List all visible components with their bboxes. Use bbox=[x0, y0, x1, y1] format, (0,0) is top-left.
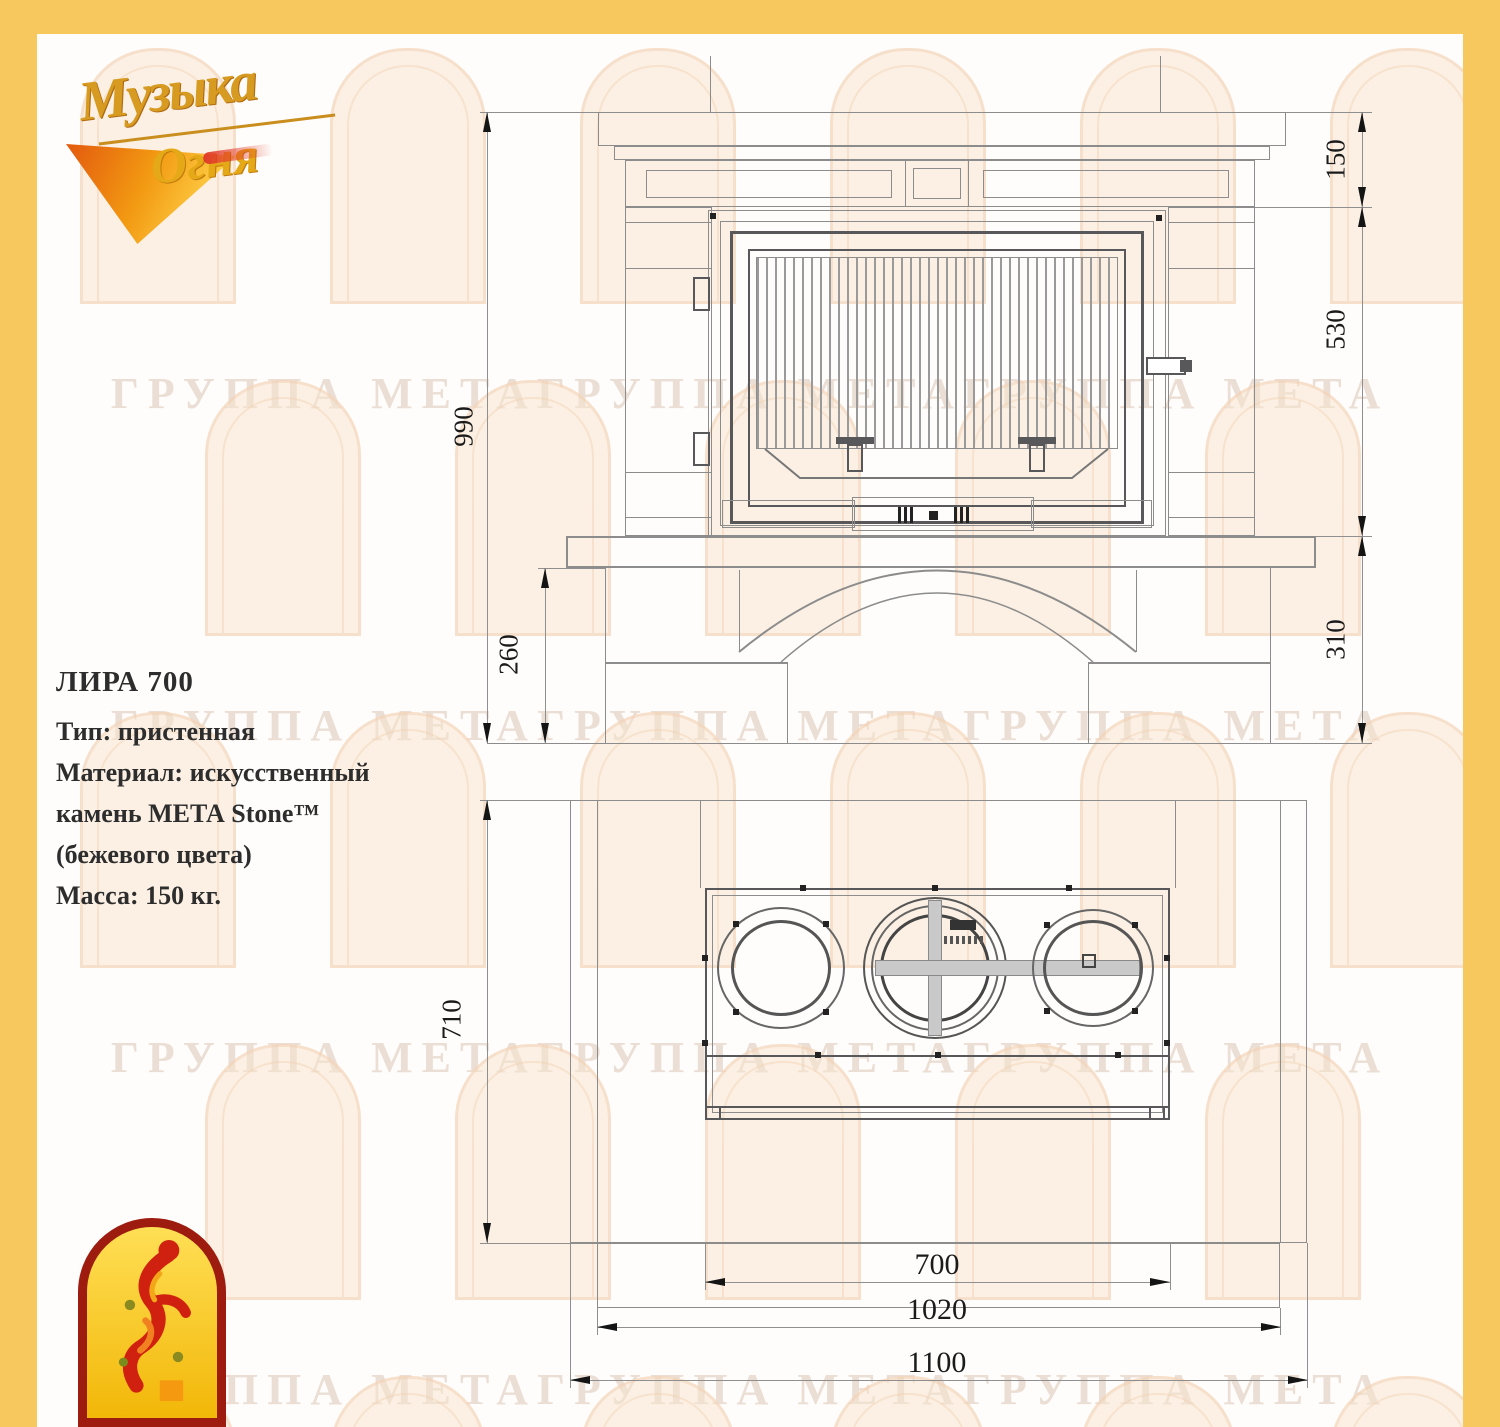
spec-sheet-page: { "theme": { "band_color": "#f6c85e", "p… bbox=[0, 0, 1500, 1427]
spec-line-stone: камень МЕТА Stone™ bbox=[56, 793, 370, 834]
product-spec-block: ЛИРА 700 Тип: пристенная Материал: искус… bbox=[56, 666, 370, 916]
spec-line-type: Тип: пристенная bbox=[56, 711, 370, 752]
top-border-band bbox=[0, 0, 1500, 34]
spec-line-material: Материал: искусственный bbox=[56, 752, 370, 793]
firebird-icon bbox=[87, 1227, 217, 1418]
spec-line-mass: Масса: 150 кг. bbox=[56, 875, 370, 916]
right-border-band bbox=[1463, 0, 1500, 1427]
brand-logo: Музыка Огня bbox=[58, 40, 358, 240]
firebird-emblem bbox=[78, 1218, 226, 1427]
product-title: ЛИРА 700 bbox=[56, 666, 370, 699]
left-border-band bbox=[0, 0, 37, 1427]
spec-line-color: (бежевого цвета) bbox=[56, 834, 370, 875]
